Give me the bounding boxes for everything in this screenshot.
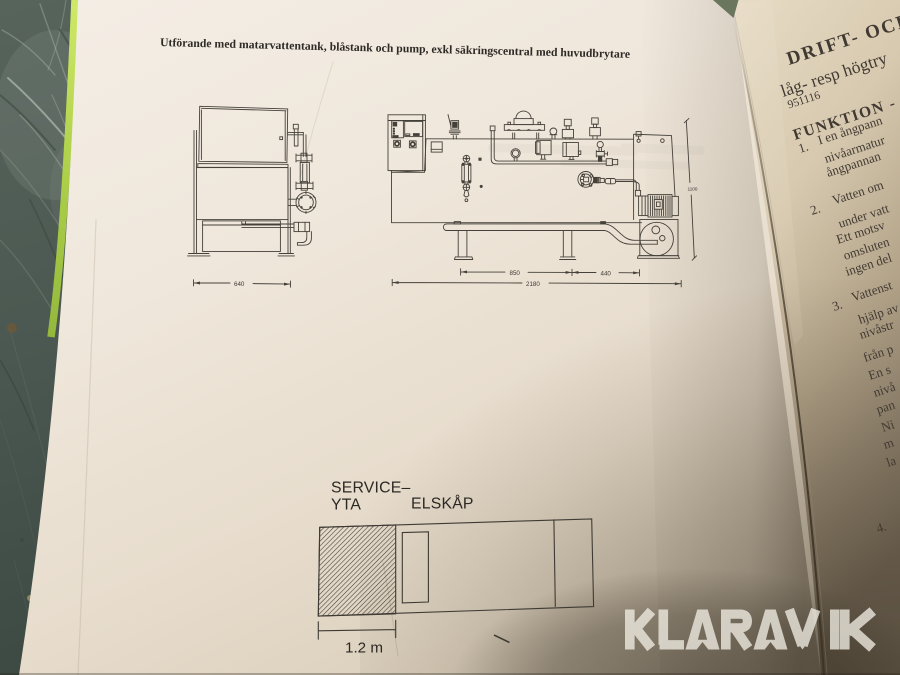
svg-text:2180: 2180: [526, 281, 540, 288]
svg-text:SERVICE–: SERVICE–: [331, 480, 410, 497]
svg-text:640: 640: [234, 281, 245, 288]
svg-text:440: 440: [601, 270, 612, 277]
svg-text:1100: 1100: [688, 186, 698, 192]
svg-text:850: 850: [510, 270, 521, 277]
svg-text:1.2 m: 1.2 m: [345, 640, 383, 657]
svg-text:YTA: YTA: [331, 497, 361, 514]
svg-text:ELSKÅP: ELSKÅP: [411, 494, 474, 513]
